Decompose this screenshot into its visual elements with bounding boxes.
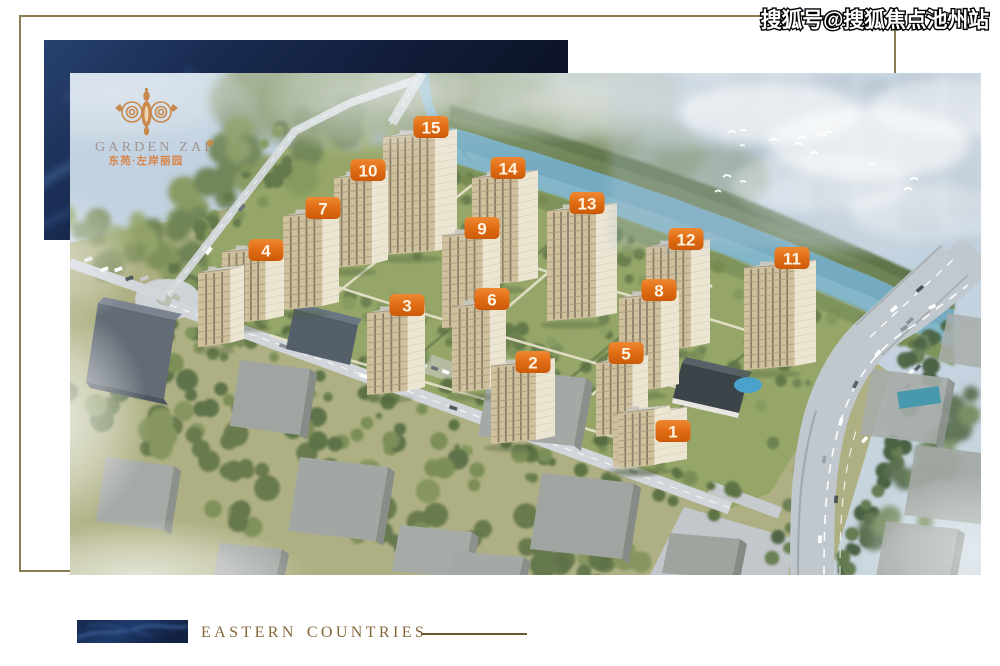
svg-text:5: 5 <box>621 345 630 364</box>
svg-text:7: 7 <box>318 200 327 219</box>
svg-text:9: 9 <box>477 220 486 239</box>
svg-text:东苑·左岸丽园: 东苑·左岸丽园 <box>109 154 184 167</box>
svg-text:10: 10 <box>359 162 378 181</box>
svg-text:1: 1 <box>668 423 677 442</box>
svg-text:搜狐号@搜狐焦点池州站: 搜狐号@搜狐焦点池州站 <box>761 8 989 32</box>
svg-text:14: 14 <box>499 160 518 179</box>
svg-text:15: 15 <box>422 119 441 138</box>
svg-text:4: 4 <box>261 242 271 261</box>
svg-text:13: 13 <box>578 195 597 214</box>
svg-text:6: 6 <box>487 291 496 310</box>
svg-text:11: 11 <box>783 250 801 269</box>
svg-text:3: 3 <box>402 297 411 316</box>
svg-text:GARDEN ZAI: GARDEN ZAI <box>95 140 212 155</box>
svg-text:8: 8 <box>654 282 663 301</box>
svg-text:12: 12 <box>677 231 696 250</box>
svg-text:2: 2 <box>528 354 537 373</box>
